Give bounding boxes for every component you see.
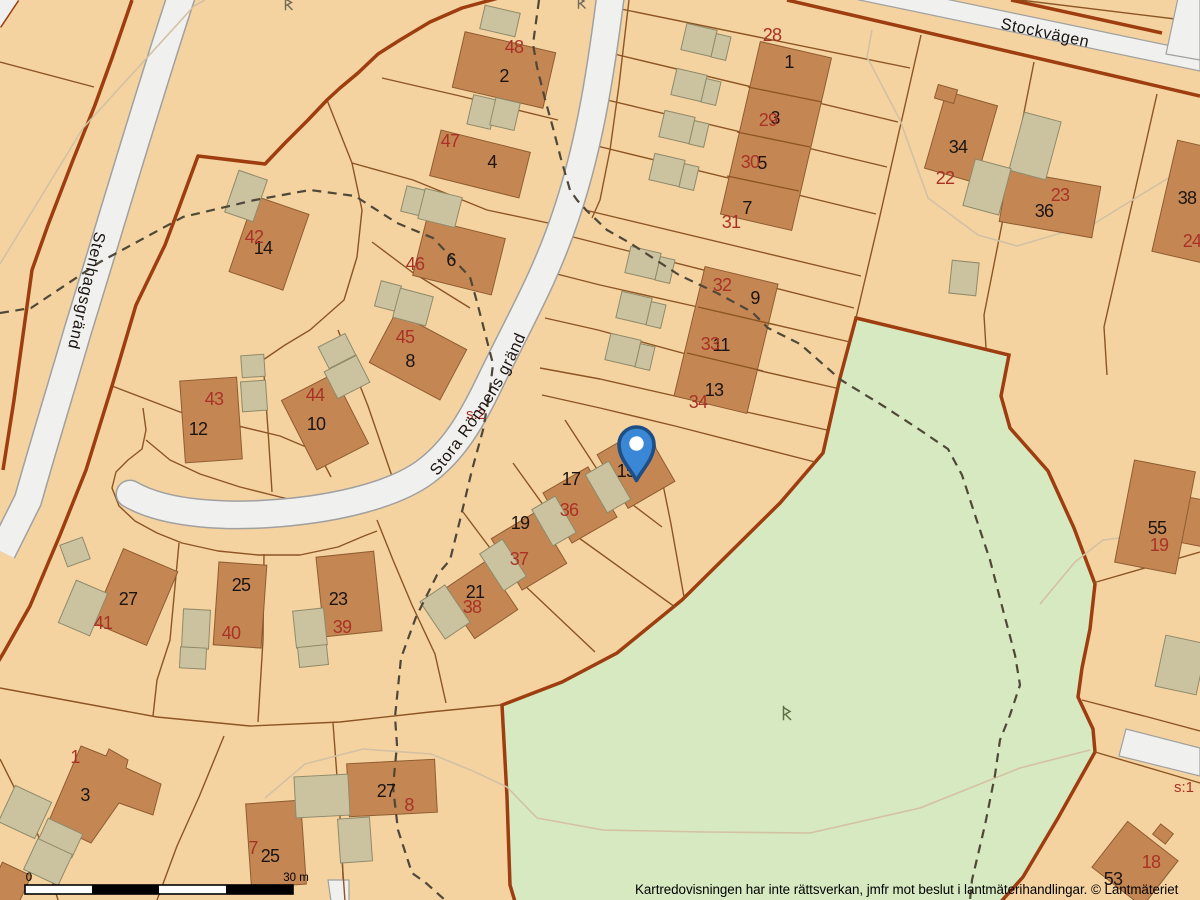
svg-text:23: 23	[1051, 185, 1070, 205]
svg-text:25: 25	[261, 846, 280, 866]
svg-text:17: 17	[562, 469, 581, 489]
svg-text:23: 23	[329, 589, 348, 609]
svg-text:31: 31	[722, 212, 741, 232]
svg-text:47: 47	[441, 131, 460, 151]
svg-text:27: 27	[119, 589, 138, 609]
svg-text:33: 33	[701, 334, 720, 354]
svg-text:38: 38	[1178, 188, 1197, 208]
svg-text:8: 8	[405, 351, 415, 371]
svg-text:38: 38	[463, 597, 482, 617]
svg-text:2: 2	[499, 66, 509, 86]
svg-text:22: 22	[936, 168, 955, 188]
svg-text:28: 28	[763, 25, 782, 45]
svg-text:25: 25	[232, 575, 251, 595]
svg-text:1: 1	[784, 52, 794, 72]
svg-text:7: 7	[248, 838, 258, 858]
svg-text:19: 19	[1150, 535, 1169, 555]
svg-text:44: 44	[306, 385, 325, 405]
svg-text:0: 0	[26, 872, 32, 884]
svg-text:Kartredovisningen har inte rät: Kartredovisningen har inte rättsverkan, …	[635, 882, 1179, 897]
svg-text:34: 34	[949, 137, 968, 157]
svg-text:6: 6	[446, 250, 456, 270]
svg-text:1: 1	[70, 747, 80, 767]
svg-text:37: 37	[510, 549, 529, 569]
svg-text:30: 30	[741, 152, 760, 172]
svg-text:29: 29	[759, 110, 778, 130]
svg-text:36: 36	[560, 500, 579, 520]
svg-text:30 m: 30 m	[283, 872, 309, 884]
svg-text:12: 12	[189, 419, 208, 439]
svg-text:41: 41	[94, 613, 113, 633]
svg-text:48: 48	[505, 37, 524, 57]
svg-text:3: 3	[80, 785, 90, 805]
svg-text:27: 27	[377, 781, 396, 801]
svg-text:9: 9	[750, 288, 760, 308]
svg-text:4: 4	[487, 152, 497, 172]
svg-text:7: 7	[742, 198, 752, 218]
svg-text:13: 13	[705, 380, 724, 400]
svg-text:s:1: s:1	[1174, 779, 1194, 796]
svg-text:46: 46	[406, 254, 425, 274]
svg-text:19: 19	[511, 513, 530, 533]
svg-text:24: 24	[1183, 231, 1200, 251]
svg-text:39: 39	[333, 617, 352, 637]
svg-text:10: 10	[307, 414, 326, 434]
svg-text:43: 43	[205, 389, 224, 409]
svg-text:40: 40	[222, 623, 241, 643]
svg-text:18: 18	[1142, 852, 1161, 872]
svg-text:42: 42	[245, 227, 264, 247]
svg-text:34: 34	[689, 392, 708, 412]
svg-text:32: 32	[713, 275, 732, 295]
svg-text:8: 8	[404, 795, 414, 815]
svg-text:45: 45	[396, 327, 415, 347]
